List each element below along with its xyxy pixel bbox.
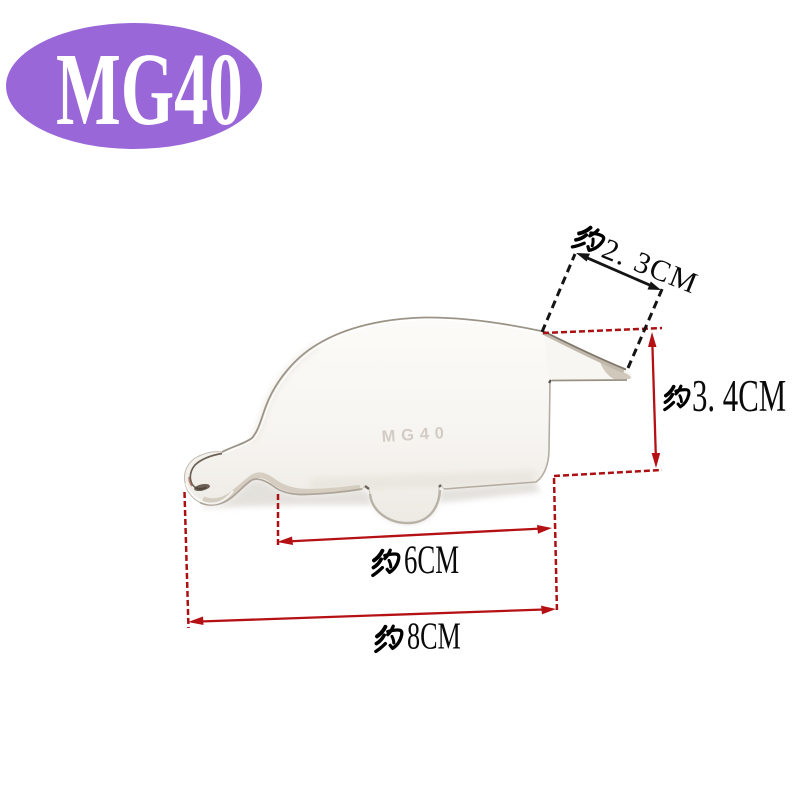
svg-text:8CM: 8CM [407, 616, 461, 658]
svg-text:6CM: 6CM [404, 539, 459, 582]
svg-text:MG40: MG40 [56, 32, 243, 148]
svg-text:3. 4CM: 3. 4CM [692, 371, 786, 422]
